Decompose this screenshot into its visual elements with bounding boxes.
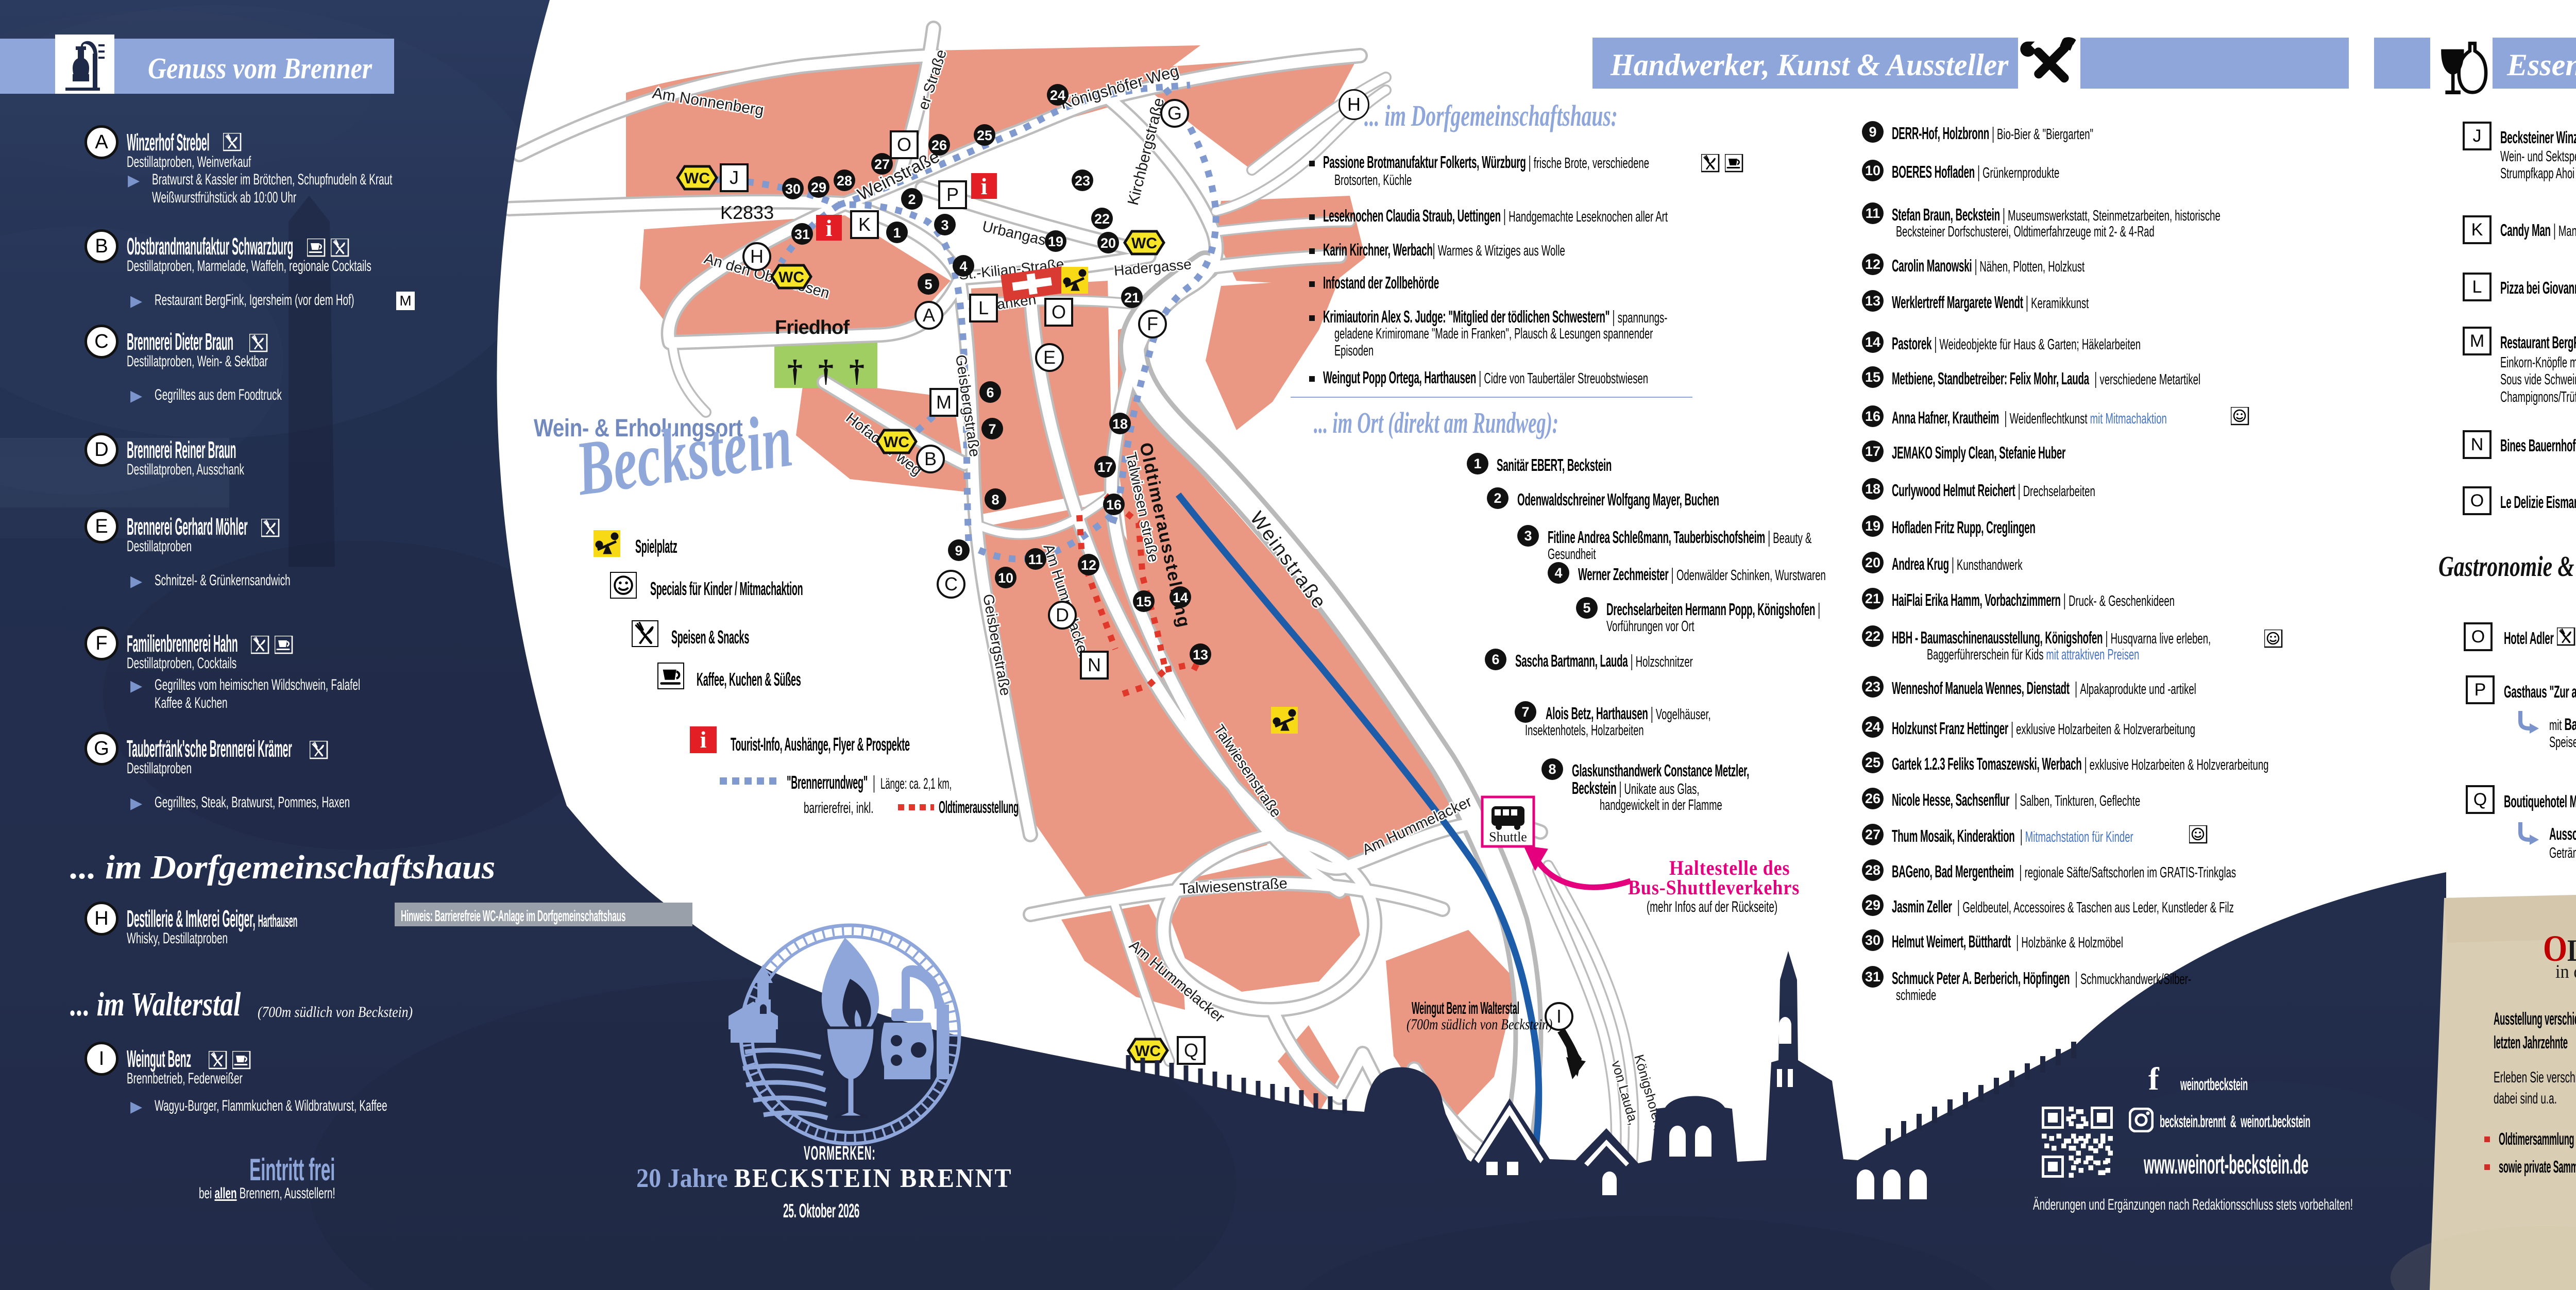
svg-text:Friedhof: Friedhof <box>775 317 850 338</box>
svg-text:2: 2 <box>908 192 916 207</box>
svg-text:18: 18 <box>1112 416 1128 432</box>
svg-text:6: 6 <box>986 385 994 400</box>
svg-text:B: B <box>924 448 937 469</box>
svg-text:C: C <box>944 573 958 595</box>
svg-text:M: M <box>936 392 952 413</box>
svg-text:29: 29 <box>811 180 826 195</box>
svg-text:9: 9 <box>955 543 962 558</box>
svg-text:24: 24 <box>1050 88 1065 103</box>
svg-text:N: N <box>1088 654 1101 675</box>
svg-text:7: 7 <box>988 421 996 437</box>
svg-text:K: K <box>858 214 871 235</box>
svg-text:1: 1 <box>893 225 901 241</box>
svg-text:8: 8 <box>991 492 999 507</box>
svg-text:i: i <box>981 173 988 199</box>
svg-text:K2833: K2833 <box>720 202 774 223</box>
svg-text:Q: Q <box>1184 1040 1198 1061</box>
svg-text:20: 20 <box>1100 235 1116 251</box>
svg-text:27: 27 <box>874 157 890 172</box>
svg-text:26: 26 <box>931 138 947 153</box>
svg-text:16: 16 <box>1106 497 1122 513</box>
svg-text:28: 28 <box>837 173 852 189</box>
svg-text:3: 3 <box>941 217 948 233</box>
svg-text:23: 23 <box>1075 173 1090 189</box>
svg-text:15: 15 <box>1136 594 1151 609</box>
svg-text:WC: WC <box>684 170 710 187</box>
svg-text:5: 5 <box>924 277 932 292</box>
svg-text:H: H <box>750 246 764 267</box>
svg-text:14: 14 <box>1173 590 1188 605</box>
svg-text:†: † <box>818 354 834 388</box>
svg-text:31: 31 <box>794 227 810 242</box>
svg-text:13: 13 <box>1193 647 1208 663</box>
svg-text:E: E <box>1043 347 1056 368</box>
svg-text:P: P <box>946 184 959 205</box>
svg-text:19: 19 <box>1048 234 1063 249</box>
svg-text:Shuttle: Shuttle <box>1489 829 1527 844</box>
svg-text:I: I <box>1556 1006 1562 1027</box>
svg-text:22: 22 <box>1094 211 1110 227</box>
svg-text:†: † <box>849 354 865 388</box>
svg-text:17: 17 <box>1097 460 1113 475</box>
svg-text:21: 21 <box>1124 290 1140 305</box>
svg-text:G: G <box>1167 103 1182 124</box>
svg-text:4: 4 <box>959 259 967 274</box>
svg-text:F: F <box>1147 313 1158 334</box>
svg-text:J: J <box>730 167 739 188</box>
svg-text:11: 11 <box>1028 552 1043 567</box>
svg-text:25: 25 <box>977 128 992 143</box>
svg-text:O: O <box>1052 301 1066 322</box>
svg-text:10: 10 <box>998 570 1013 586</box>
svg-text:D: D <box>1056 604 1069 625</box>
svg-text:O: O <box>897 134 911 155</box>
svg-text:L: L <box>978 297 989 318</box>
svg-text:†: † <box>787 354 803 388</box>
svg-text:A: A <box>923 304 935 326</box>
svg-text:30: 30 <box>785 181 801 197</box>
svg-text:12: 12 <box>1081 557 1096 573</box>
